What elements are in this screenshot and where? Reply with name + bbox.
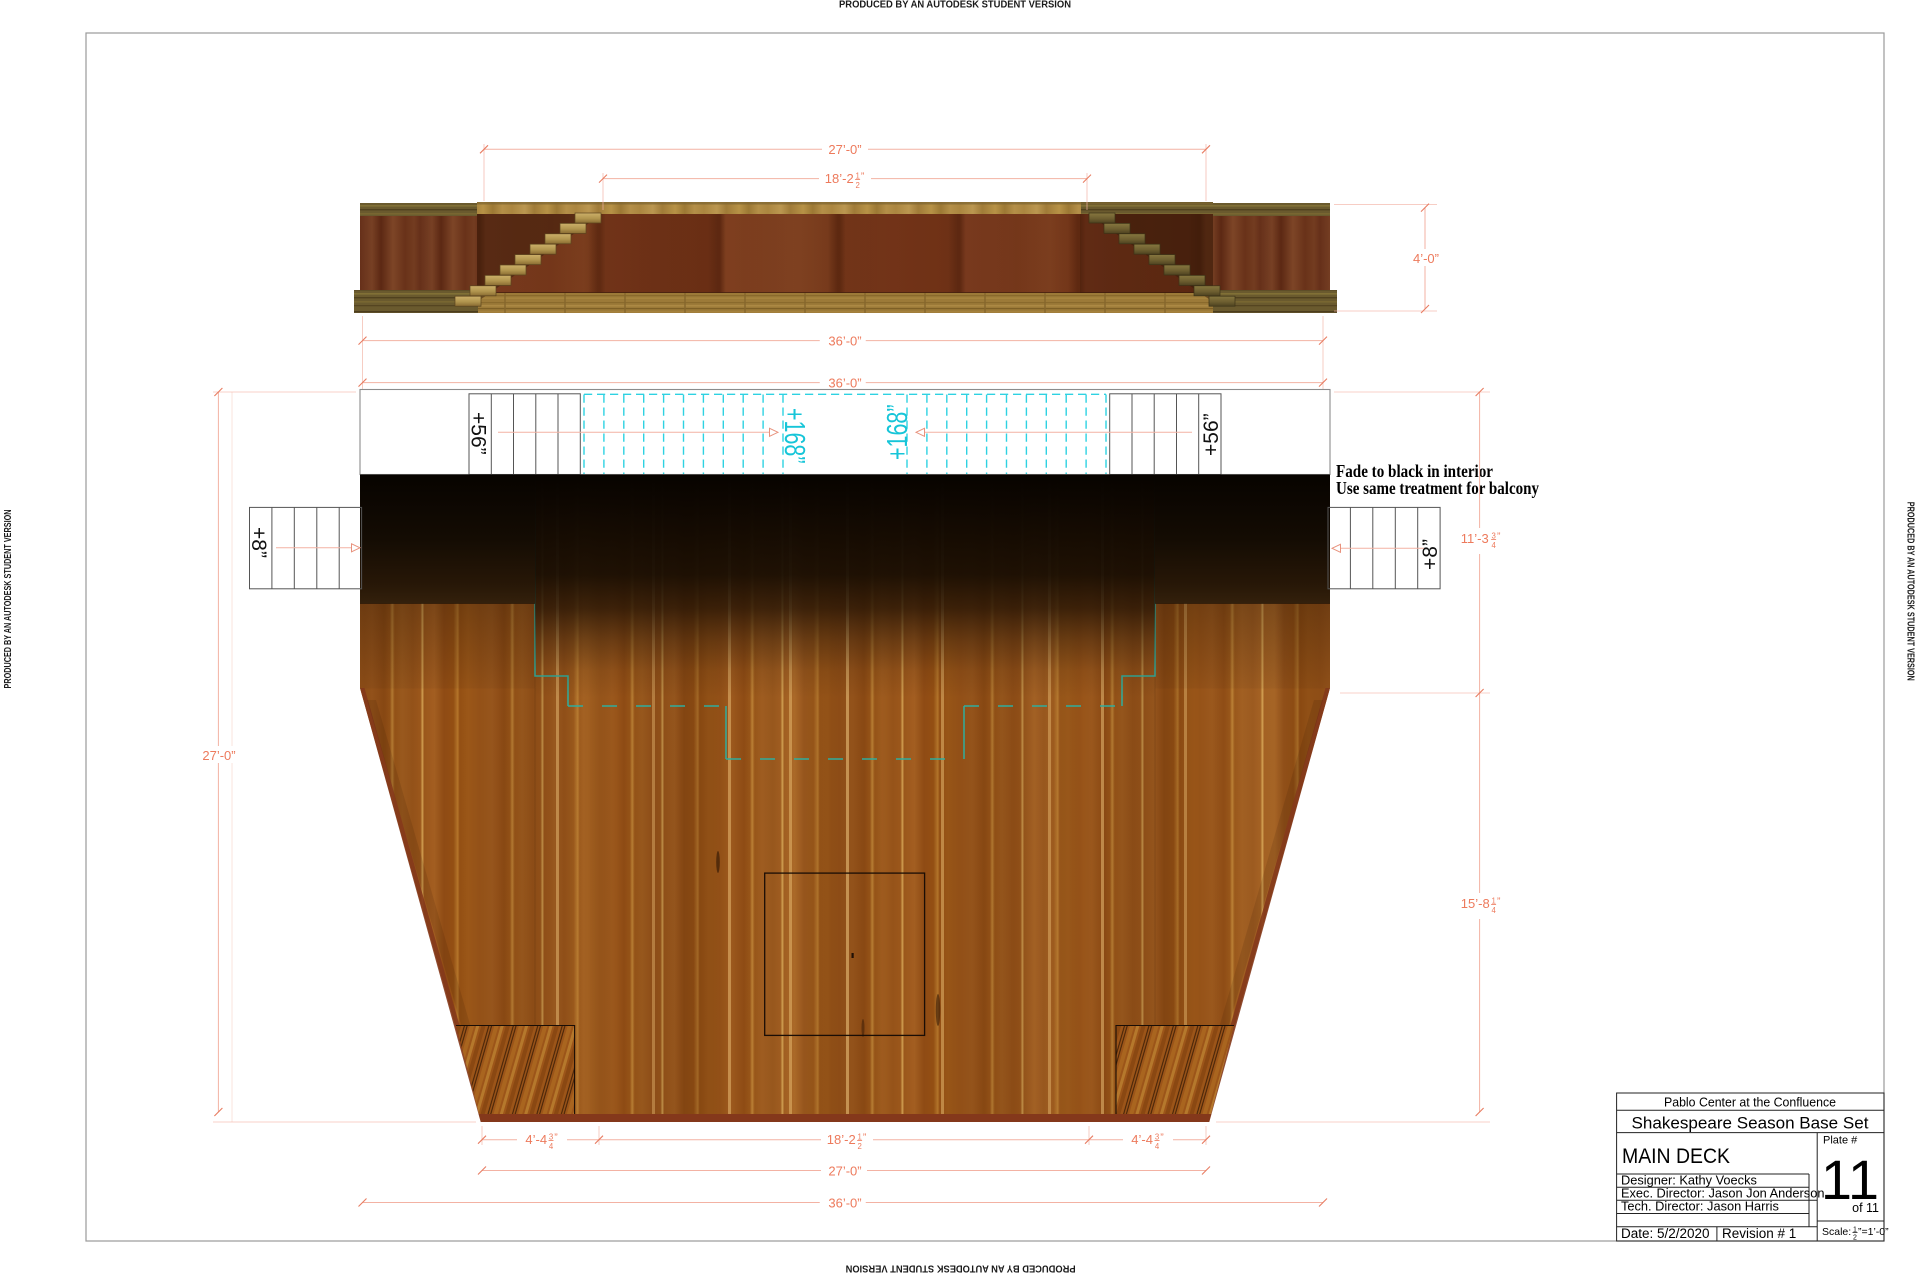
svg-text:MAIN DECK: MAIN DECK (1622, 1145, 1730, 1168)
svg-text:”: ” (861, 172, 865, 183)
svg-text:4’-4: 4’-4 (525, 1132, 547, 1147)
svg-text:”: ” (863, 1133, 867, 1144)
svg-text:15’-8: 15’-8 (1461, 896, 1490, 911)
svg-text:4: 4 (1155, 1142, 1160, 1151)
svg-text:Pablo Center at the Confluence: Pablo Center at the Confluence (1664, 1095, 1836, 1110)
svg-text:27’-0”: 27’-0” (828, 142, 861, 157)
svg-text:4: 4 (1492, 906, 1497, 915)
svg-text:4’-4: 4’-4 (1131, 1132, 1153, 1147)
svg-text:of 11: of 11 (1852, 1201, 1879, 1215)
svg-text:”=1’-0”: ”=1’-0” (1858, 1226, 1889, 1238)
svg-text:PRODUCED BY AN AUTODESK STUDEN: PRODUCED BY AN AUTODESK STUDENT VERSION (1905, 502, 1916, 681)
svg-text:2: 2 (1853, 1235, 1857, 1242)
svg-text:+56”: +56” (1200, 413, 1223, 456)
svg-text:+8”: +8” (1419, 539, 1442, 570)
svg-text:4: 4 (549, 1142, 554, 1151)
svg-text:1: 1 (1492, 896, 1496, 905)
svg-text:”: ” (1497, 532, 1501, 543)
svg-text:”: ” (1160, 1133, 1164, 1144)
svg-text:18’-2: 18’-2 (827, 1132, 856, 1147)
svg-text:Plate #: Plate # (1823, 1135, 1858, 1147)
svg-text:4’-0”: 4’-0” (1413, 251, 1439, 266)
svg-text:3: 3 (1155, 1132, 1159, 1141)
svg-text:27’-0”: 27’-0” (828, 1164, 861, 1179)
svg-text:Use same treatment for balcony: Use same treatment for balcony (1336, 478, 1539, 498)
svg-text:36’-0”: 36’-0” (828, 376, 861, 391)
svg-text:Tech. Director: Jason Harris: Tech. Director: Jason Harris (1621, 1199, 1779, 1214)
svg-text:+168”: +168” (778, 408, 810, 463)
svg-text:11’-3: 11’-3 (1461, 531, 1489, 546)
svg-text:2: 2 (856, 181, 860, 190)
svg-text:4: 4 (1492, 541, 1497, 550)
svg-text:Date: 5/2/2020: Date: 5/2/2020 (1621, 1226, 1710, 1241)
svg-text:36’-0”: 36’-0” (828, 334, 861, 349)
svg-text:1: 1 (858, 1132, 862, 1141)
svg-text:PRODUCED BY AN AUTODESK STUDEN: PRODUCED BY AN AUTODESK STUDENT VERSION (846, 1263, 1076, 1274)
svg-text:PRODUCED BY AN AUTODESK STUDEN: PRODUCED BY AN AUTODESK STUDENT VERSION (3, 510, 14, 689)
svg-text:PRODUCED BY AN AUTODESK STUDEN: PRODUCED BY AN AUTODESK STUDENT VERSION (839, 0, 1071, 11)
svg-text:Shakespeare Season Base Set: Shakespeare Season Base Set (1632, 1114, 1869, 1133)
svg-text:+168”: +168” (882, 405, 914, 460)
svg-text:+56”: +56” (467, 412, 490, 455)
svg-text:Scale:: Scale: (1822, 1226, 1851, 1238)
svg-text:36’-0”: 36’-0” (828, 1196, 861, 1211)
svg-text:”: ” (1497, 897, 1501, 908)
svg-text:27’-0”: 27’-0” (202, 748, 235, 763)
svg-text:3: 3 (549, 1132, 553, 1141)
svg-text:2: 2 (858, 1142, 862, 1151)
svg-text:1: 1 (856, 171, 860, 180)
svg-text:18’-2: 18’-2 (825, 171, 854, 186)
svg-text:3: 3 (1492, 531, 1496, 540)
svg-text:Revision # 1: Revision # 1 (1722, 1226, 1796, 1241)
svg-text:”: ” (554, 1133, 558, 1144)
svg-text:+8”: +8” (247, 527, 270, 558)
